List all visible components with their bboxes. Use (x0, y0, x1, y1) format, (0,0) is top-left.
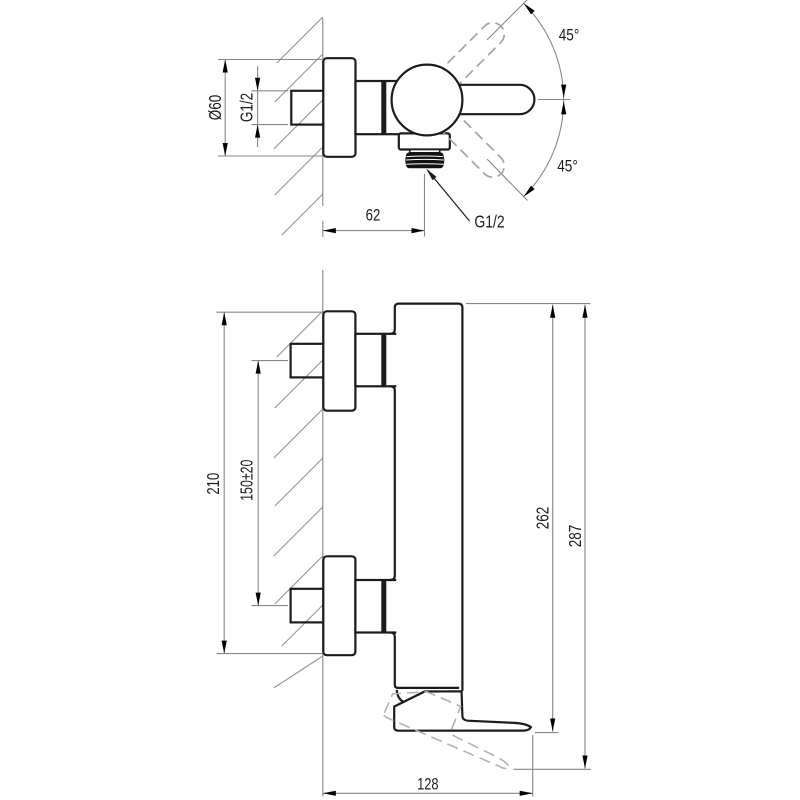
svg-text:262: 262 (534, 507, 553, 530)
svg-text:150±20: 150±20 (237, 460, 257, 501)
svg-text:G1/2: G1/2 (474, 213, 504, 232)
svg-text:62: 62 (366, 206, 381, 225)
svg-text:287: 287 (566, 525, 585, 548)
svg-text:128: 128 (417, 776, 438, 794)
svg-text:Ø60: Ø60 (206, 95, 225, 121)
svg-text:G1/2: G1/2 (238, 93, 257, 122)
svg-text:210: 210 (204, 473, 223, 495)
svg-text:45°: 45° (557, 157, 578, 176)
svg-text:45°: 45° (559, 26, 580, 45)
